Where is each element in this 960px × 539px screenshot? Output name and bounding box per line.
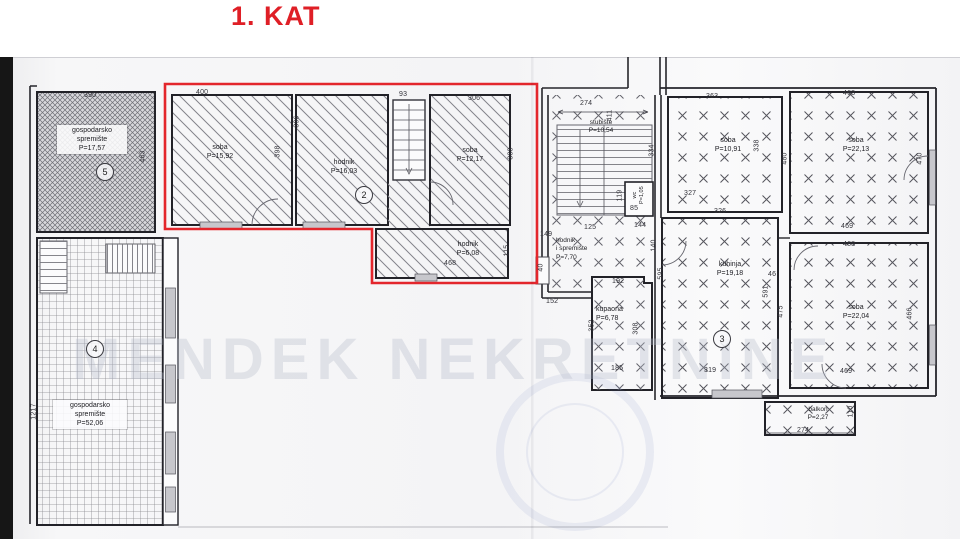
dimension-label: 352 <box>589 319 596 331</box>
dimension-label: 595 <box>658 267 665 279</box>
room-name: spremište <box>55 410 125 419</box>
room-name: soba <box>438 146 502 155</box>
dimension-label: 115 <box>503 245 510 257</box>
unit-number-3: 3 <box>713 330 731 348</box>
room-label-hodnik-608: hodnik P=6,08 <box>436 240 500 258</box>
room-label-soba-1592: soba P=15,92 <box>182 143 258 161</box>
room-area: P=19,18 <box>698 269 762 278</box>
page-title: 1. KAT <box>231 1 321 32</box>
dimension-label: 93 <box>399 91 407 98</box>
room-label-kupaona: kupaona P=6,78 <box>596 305 650 323</box>
dimension-label: 334 <box>649 144 656 156</box>
room-area: P=22,04 <box>820 312 892 321</box>
room-area: P=10,91 <box>696 145 760 154</box>
dimension-label: 1217 <box>31 403 38 419</box>
dimension-label: 591 <box>763 285 770 297</box>
dimension-label: 411 <box>606 110 613 122</box>
dimension-label: 144 <box>634 222 646 229</box>
room-area: P=6,78 <box>596 314 650 323</box>
room-label-stubiste: stubište P=10,54 <box>572 119 630 136</box>
dimension-label: 390 <box>84 92 96 99</box>
dimension-label: 192 <box>612 278 624 285</box>
room-area: P=17,57 <box>59 144 125 153</box>
dimension-label: 308 <box>633 322 640 334</box>
dimension-label: 140 <box>651 239 658 251</box>
dimension-label: 388 <box>508 147 515 159</box>
room-label-hodnik-1603: hodnik P=16,03 <box>306 158 382 176</box>
room-area: P=10,54 <box>572 127 630 135</box>
room-label-store-5: gospodarsko spremište P=17,57 <box>57 125 127 154</box>
room-name: hodnik <box>556 237 620 245</box>
room-name: stubište <box>572 119 630 127</box>
room-name: i spremište <box>556 245 620 253</box>
dimension-label: 185 <box>611 365 623 372</box>
dimension-label: 363 <box>706 93 718 100</box>
dimension-label: 468 <box>843 241 855 248</box>
dimension-label: 466 <box>907 307 914 319</box>
dimension-label: 396 <box>294 115 301 127</box>
room-label-balkon: balkon P=2,27 <box>786 406 850 423</box>
dimension-label: 480 <box>782 152 789 164</box>
dimension-label: 398 <box>275 145 282 157</box>
room-name: soba <box>696 136 760 145</box>
dimension-label: 463 <box>140 150 147 162</box>
dimension-label: 475 <box>778 305 785 317</box>
room-name: kupaona <box>596 305 650 314</box>
dimension-label: 46 <box>768 271 776 278</box>
dimension-label: 326 <box>714 208 726 215</box>
room-name: gospodarsko <box>55 401 125 410</box>
room-label-hodnik-770: hodnik i spremište P=7,70 <box>556 237 620 262</box>
room-name: spremište <box>59 135 125 144</box>
room-label-soba-2213: soba P=22,13 <box>820 136 892 154</box>
room-area: P=16,03 <box>306 167 382 176</box>
room-area: P=6,08 <box>436 249 500 258</box>
room-name: soba <box>182 143 258 152</box>
room-label-soba-2204: soba P=22,04 <box>820 303 892 321</box>
room-area: P=7,70 <box>556 254 620 262</box>
dimension-label: 152 <box>546 298 558 305</box>
scanned-floorplan-page: 1. KAT MENDEK NEKRETNINE 5 4 2 3 gospoda… <box>0 0 960 539</box>
unit-number-5: 5 <box>96 163 114 181</box>
dimension-label: 274 <box>580 100 592 107</box>
dimension-label: 470 <box>917 152 924 164</box>
dimension-label: 119 <box>616 190 623 202</box>
dimension-label: 125 <box>584 224 596 231</box>
dimension-label: 400 <box>196 89 208 96</box>
room-area: P=52,06 <box>55 419 125 428</box>
room-label-soba-1217: soba P=12,17 <box>438 146 502 164</box>
room-name: hodnik <box>436 240 500 249</box>
room-area: P=15,92 <box>182 152 258 161</box>
dimension-label: 469 <box>840 368 852 375</box>
room-name: soba <box>820 136 892 145</box>
dimension-label: 274 <box>797 427 809 434</box>
room-label-store-4: gospodarsko spremište P=52,06 <box>53 400 127 429</box>
dimension-label: 85 <box>630 205 638 212</box>
room-label-kuhinja: kuhinja P=19,18 <box>698 260 762 278</box>
unit-number-2: 2 <box>355 186 373 204</box>
room-area: P=12,17 <box>438 155 502 164</box>
unit-number-4: 4 <box>86 340 104 358</box>
dimension-label: 149 <box>540 231 552 238</box>
dimension-label: 327 <box>684 190 696 197</box>
room-area: P=1,05 <box>639 178 646 212</box>
room-label-soba-1091: soba P=10,91 <box>696 136 760 154</box>
watermark: MENDEK NEKRETNINE <box>72 326 960 393</box>
dimension-label: 463 <box>843 90 855 97</box>
room-name: balkon <box>786 406 850 414</box>
floorplan-drawing <box>0 0 960 539</box>
room-area: P=2,27 <box>786 414 850 422</box>
room-name: gospodarsko <box>59 126 125 135</box>
dimension-label: 468 <box>444 260 456 267</box>
dimension-label: 40 <box>538 263 545 271</box>
dimension-label: 469 <box>841 223 853 230</box>
room-name: soba <box>820 303 892 312</box>
dimension-label: 110 <box>847 406 854 418</box>
dimension-label: 306 <box>468 95 480 102</box>
dimension-label: 338 <box>754 139 761 151</box>
room-name: kuhinja <box>698 260 762 269</box>
room-area: P=22,13 <box>820 145 892 154</box>
room-name: hodnik <box>306 158 382 167</box>
dimension-label: 319 <box>704 367 716 374</box>
